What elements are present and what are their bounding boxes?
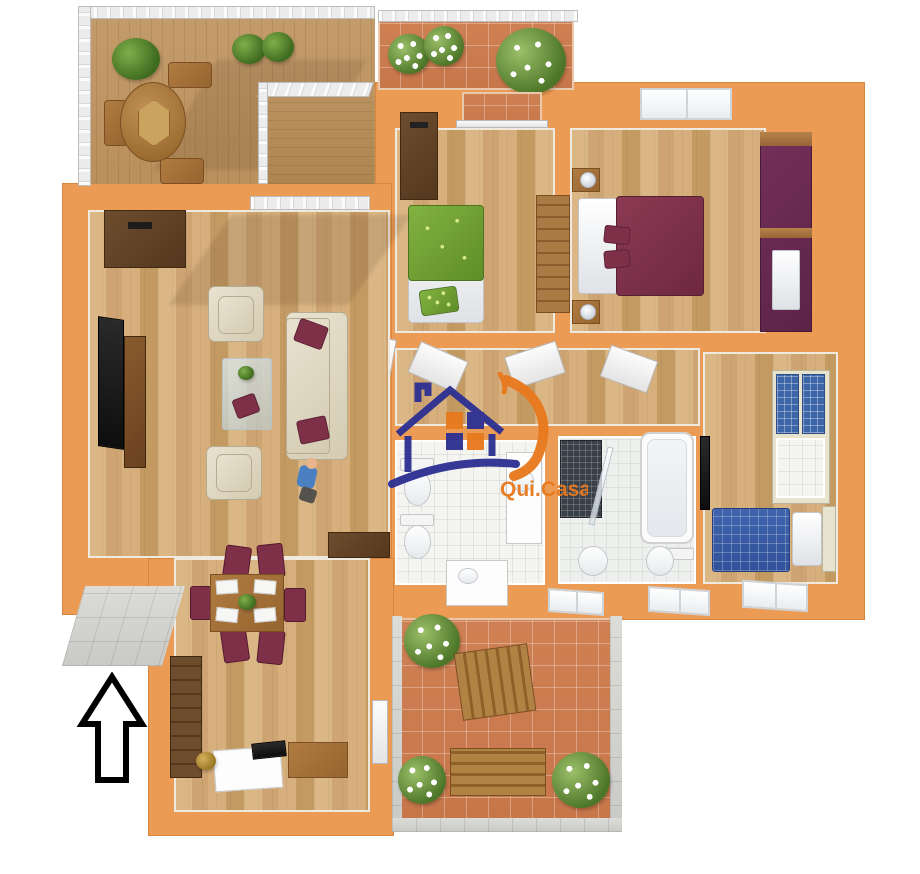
terrace-chair-top (168, 62, 212, 88)
bottom-window-2 (648, 586, 710, 616)
living-terrace-door (250, 196, 370, 210)
bottom-window-3 (742, 580, 808, 613)
desk-sideboard (288, 742, 348, 778)
study-wall-tv (700, 436, 710, 510)
study-bed-pillow (792, 512, 822, 566)
dining-placemat-1 (216, 579, 239, 595)
dining-sideboard-topwall (328, 532, 390, 558)
kids-balcony-door-frame (456, 120, 548, 128)
brand-watermark-text: Qui.Casa (500, 478, 588, 501)
bath-left-bidet-bowl (404, 525, 431, 559)
bath-left-cabinet-sink (458, 568, 478, 584)
terrace-plant-3 (262, 32, 294, 62)
bath-right-toilet-bowl (646, 546, 674, 576)
study-bed-frame (822, 506, 836, 572)
study-bookshelf-glass-1 (776, 374, 799, 434)
bath-right-bathtub (640, 432, 694, 544)
master-bed-cushion-2 (603, 249, 630, 269)
north-up-arrow-icon (72, 672, 152, 787)
child-figure-head (306, 458, 317, 469)
kids-bed-cushion (418, 285, 459, 316)
living-media-unit (124, 336, 146, 468)
entry-cabinet-handle (128, 222, 152, 229)
balcony-flower-pot-2 (424, 26, 464, 66)
bath-left-cabinet (446, 560, 508, 606)
dining-terrace-door (372, 700, 388, 764)
living-armchair-top-seat (218, 296, 254, 334)
bottom-window-1 (548, 588, 604, 616)
lower-terrace-plant-2 (398, 756, 446, 804)
balcony-niche-railing (257, 82, 374, 97)
lower-terrace-plant-1 (404, 614, 460, 668)
kids-wardrobe-handle (410, 122, 428, 128)
dining-chair-3 (190, 586, 212, 620)
dining-placemat-4 (253, 607, 276, 623)
lower-terrace-plant-3 (552, 752, 610, 808)
balcony-niche-floor (262, 96, 374, 184)
master-wardrobe-mid-band (760, 228, 812, 238)
master-wardrobe-mirror (772, 250, 800, 310)
master-lamp-top (580, 172, 596, 188)
floor-plan-canvas: Qui.Casa (0, 0, 920, 874)
terrace-railing-top (80, 6, 375, 19)
balcony-flower-pot-3 (496, 28, 566, 94)
dining-placemat-2 (253, 579, 276, 595)
master-wardrobe-top-band (760, 132, 812, 146)
dining-centerpiece-plant (238, 594, 256, 610)
terrace-plant-1 (112, 38, 160, 80)
terrace-slat-table (450, 748, 546, 796)
dining-placemat-3 (215, 607, 238, 623)
kids-bed-duvet (408, 205, 484, 281)
desk-plant (196, 752, 216, 770)
kids-dresser (536, 195, 570, 313)
coffee-table-plant (238, 366, 254, 380)
terrace-slat-bench (454, 643, 537, 721)
brand-watermark-logo: Qui.Casa (388, 372, 588, 502)
master-bed-pillows (578, 198, 618, 294)
living-tv (98, 316, 124, 450)
terrace-chair-bottom (160, 158, 204, 184)
lower-terrace-curb-bottom (392, 818, 622, 832)
bath-right-bidet-bowl (578, 546, 608, 576)
front-balcony-railing (378, 10, 578, 22)
lower-terrace-curb-left (392, 616, 402, 830)
balcony-niche-railing-left (258, 82, 268, 184)
lower-terrace-curb-right (610, 616, 622, 830)
master-bed-cushion-1 (603, 225, 631, 246)
master-bed-duvet (616, 196, 704, 296)
master-window (640, 88, 732, 120)
dining-chair-6 (256, 629, 285, 666)
logo-window-grid (446, 412, 484, 450)
living-armchair-bottom-seat (216, 454, 252, 492)
study-bookshelf-glass-2 (802, 374, 825, 434)
dining-chair-4 (284, 588, 306, 622)
study-bed-duvet (712, 508, 790, 572)
terrace-plant-2 (232, 34, 266, 64)
master-lamp-bottom (580, 304, 596, 320)
terrace-railing-left (78, 6, 91, 186)
entry-cabinet (104, 210, 186, 268)
study-bookshelf-lower (776, 438, 825, 498)
